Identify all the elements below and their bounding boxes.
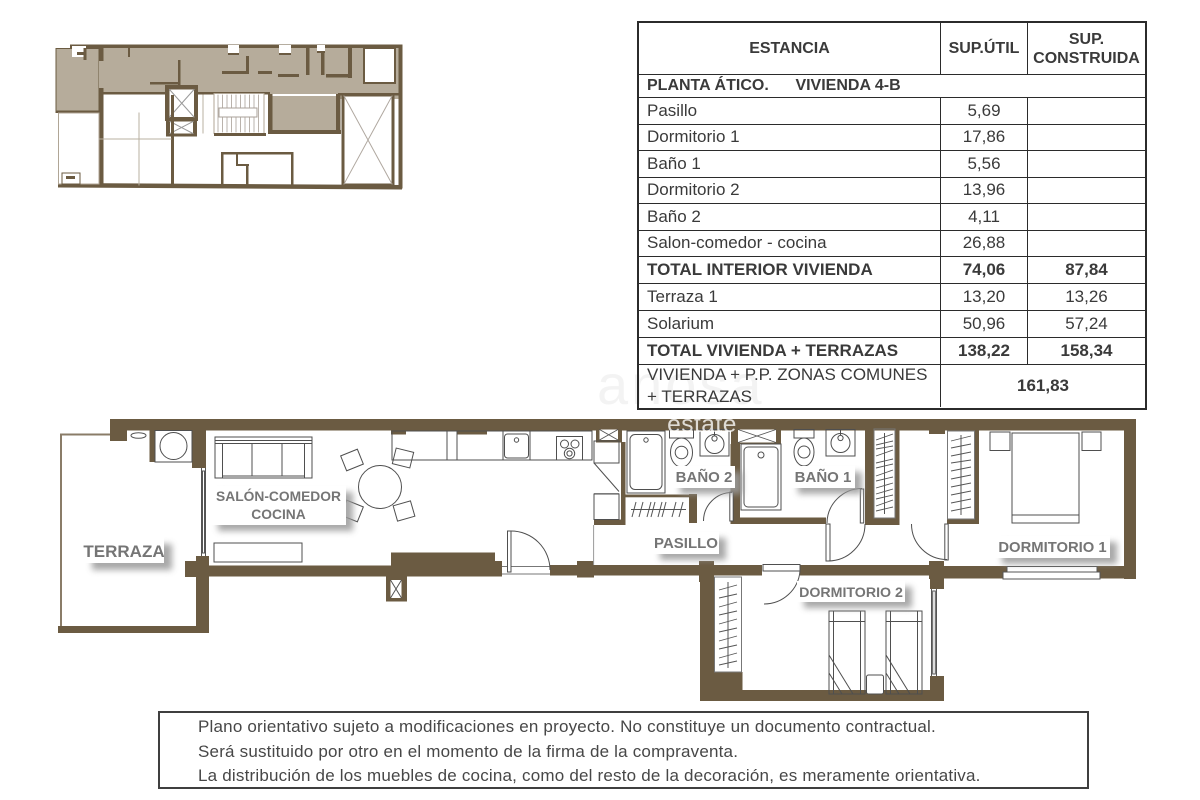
svg-text:DORMITORIO 2: DORMITORIO 2 <box>799 585 903 601</box>
svg-text:BAÑO 1: BAÑO 1 <box>795 468 852 486</box>
svg-text:PASILLO: PASILLO <box>654 535 718 552</box>
svg-text:BAÑO 2: BAÑO 2 <box>676 468 733 486</box>
svg-text:estate: estate <box>667 411 737 438</box>
svg-text:SALÓN-COMEDOR: SALÓN-COMEDOR <box>216 487 341 504</box>
svg-text:TERRAZA: TERRAZA <box>83 542 164 561</box>
svg-text:DORMITORIO 1: DORMITORIO 1 <box>998 540 1106 556</box>
svg-text:COCINA: COCINA <box>251 507 305 522</box>
